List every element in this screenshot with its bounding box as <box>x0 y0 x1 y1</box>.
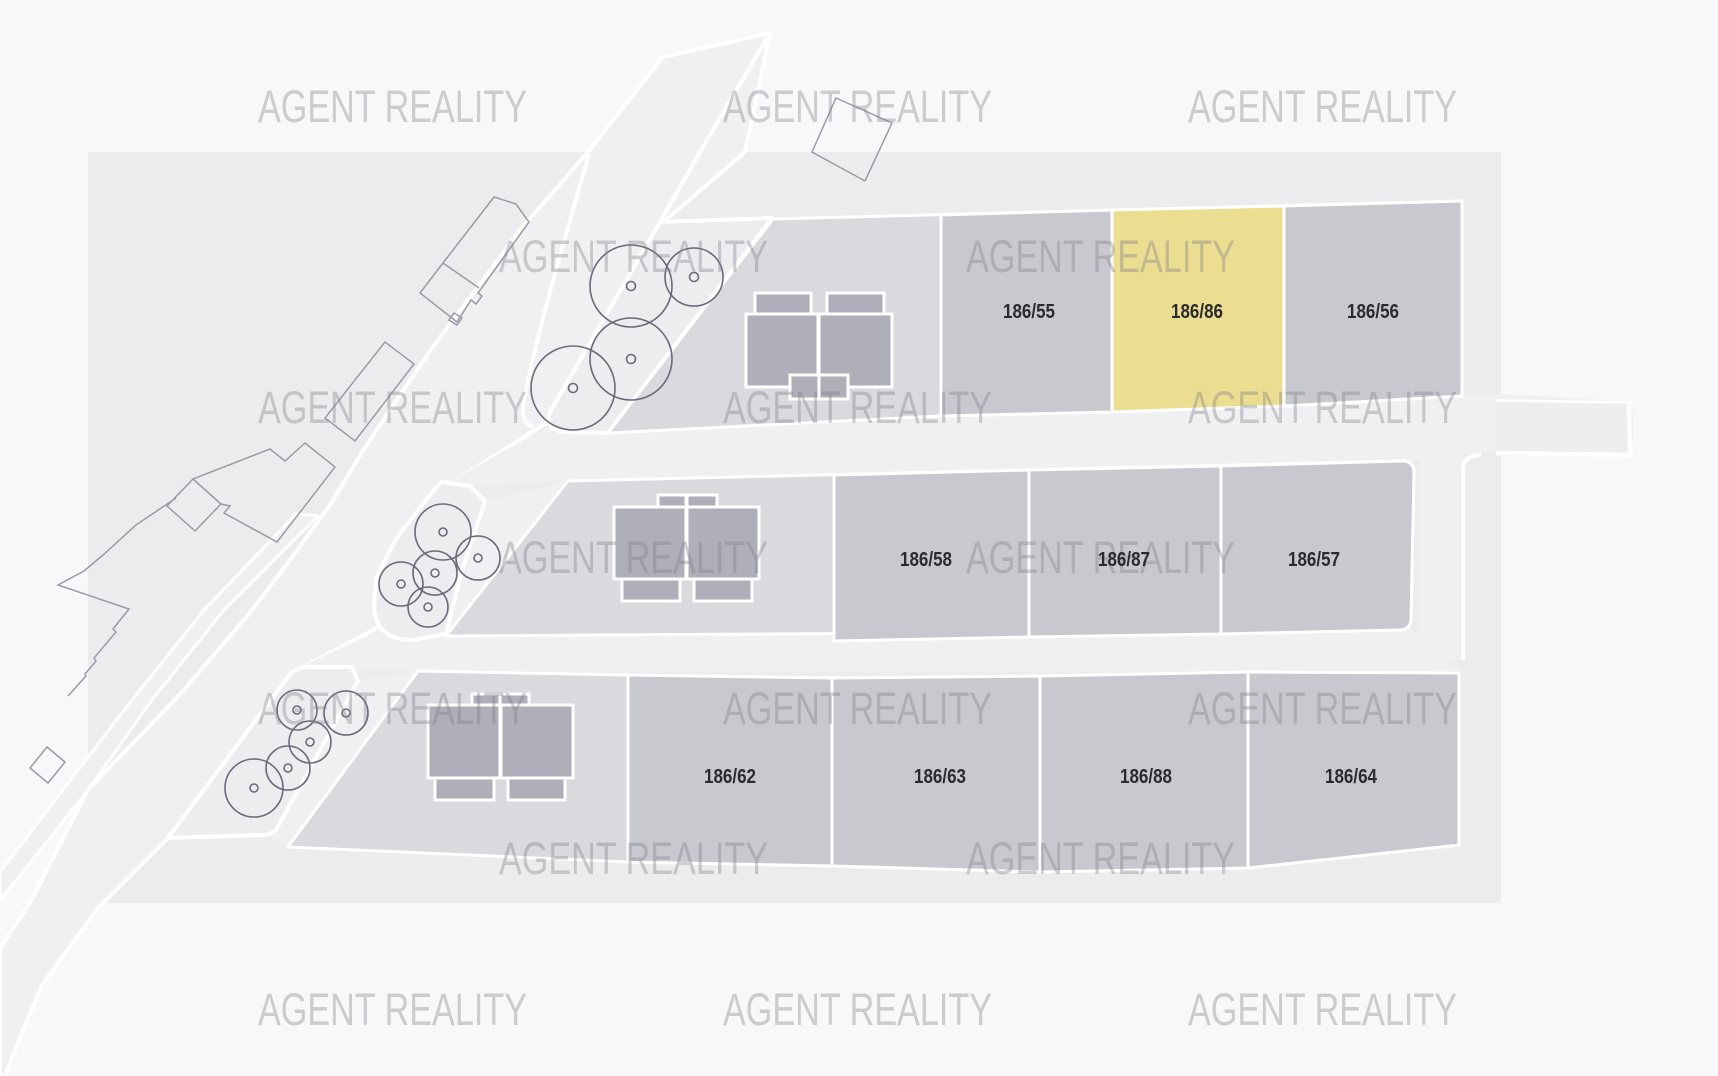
svg-text:AGENT REALITY: AGENT REALITY <box>723 382 992 433</box>
svg-text:AGENT REALITY: AGENT REALITY <box>258 683 527 734</box>
svg-text:AGENT REALITY: AGENT REALITY <box>1188 81 1457 132</box>
svg-text:AGENT REALITY: AGENT REALITY <box>258 81 527 132</box>
svg-text:AGENT REALITY: AGENT REALITY <box>258 984 527 1035</box>
svg-text:186/87: 186/87 <box>1098 549 1150 571</box>
svg-text:186/57: 186/57 <box>1288 549 1340 571</box>
svg-text:AGENT REALITY: AGENT REALITY <box>723 984 992 1035</box>
svg-text:186/86: 186/86 <box>1171 301 1223 323</box>
svg-text:186/63: 186/63 <box>914 766 966 788</box>
svg-text:AGENT REALITY: AGENT REALITY <box>723 683 992 734</box>
svg-text:AGENT REALITY: AGENT REALITY <box>258 382 527 433</box>
svg-text:AGENT REALITY: AGENT REALITY <box>1188 683 1457 734</box>
svg-text:186/88: 186/88 <box>1120 766 1172 788</box>
svg-text:AGENT REALITY: AGENT REALITY <box>1188 382 1457 433</box>
svg-text:AGENT REALITY: AGENT REALITY <box>966 231 1235 282</box>
svg-text:186/56: 186/56 <box>1347 301 1399 323</box>
svg-text:AGENT REALITY: AGENT REALITY <box>1188 984 1457 1035</box>
svg-text:186/55: 186/55 <box>1003 301 1055 323</box>
svg-text:AGENT REALITY: AGENT REALITY <box>966 833 1235 884</box>
svg-text:AGENT REALITY: AGENT REALITY <box>499 231 768 282</box>
svg-text:186/58: 186/58 <box>900 549 952 571</box>
svg-text:186/62: 186/62 <box>704 766 756 788</box>
svg-text:AGENT REALITY: AGENT REALITY <box>499 532 768 583</box>
svg-text:186/64: 186/64 <box>1325 766 1378 788</box>
svg-text:AGENT REALITY: AGENT REALITY <box>723 81 992 132</box>
svg-text:AGENT REALITY: AGENT REALITY <box>499 833 768 884</box>
